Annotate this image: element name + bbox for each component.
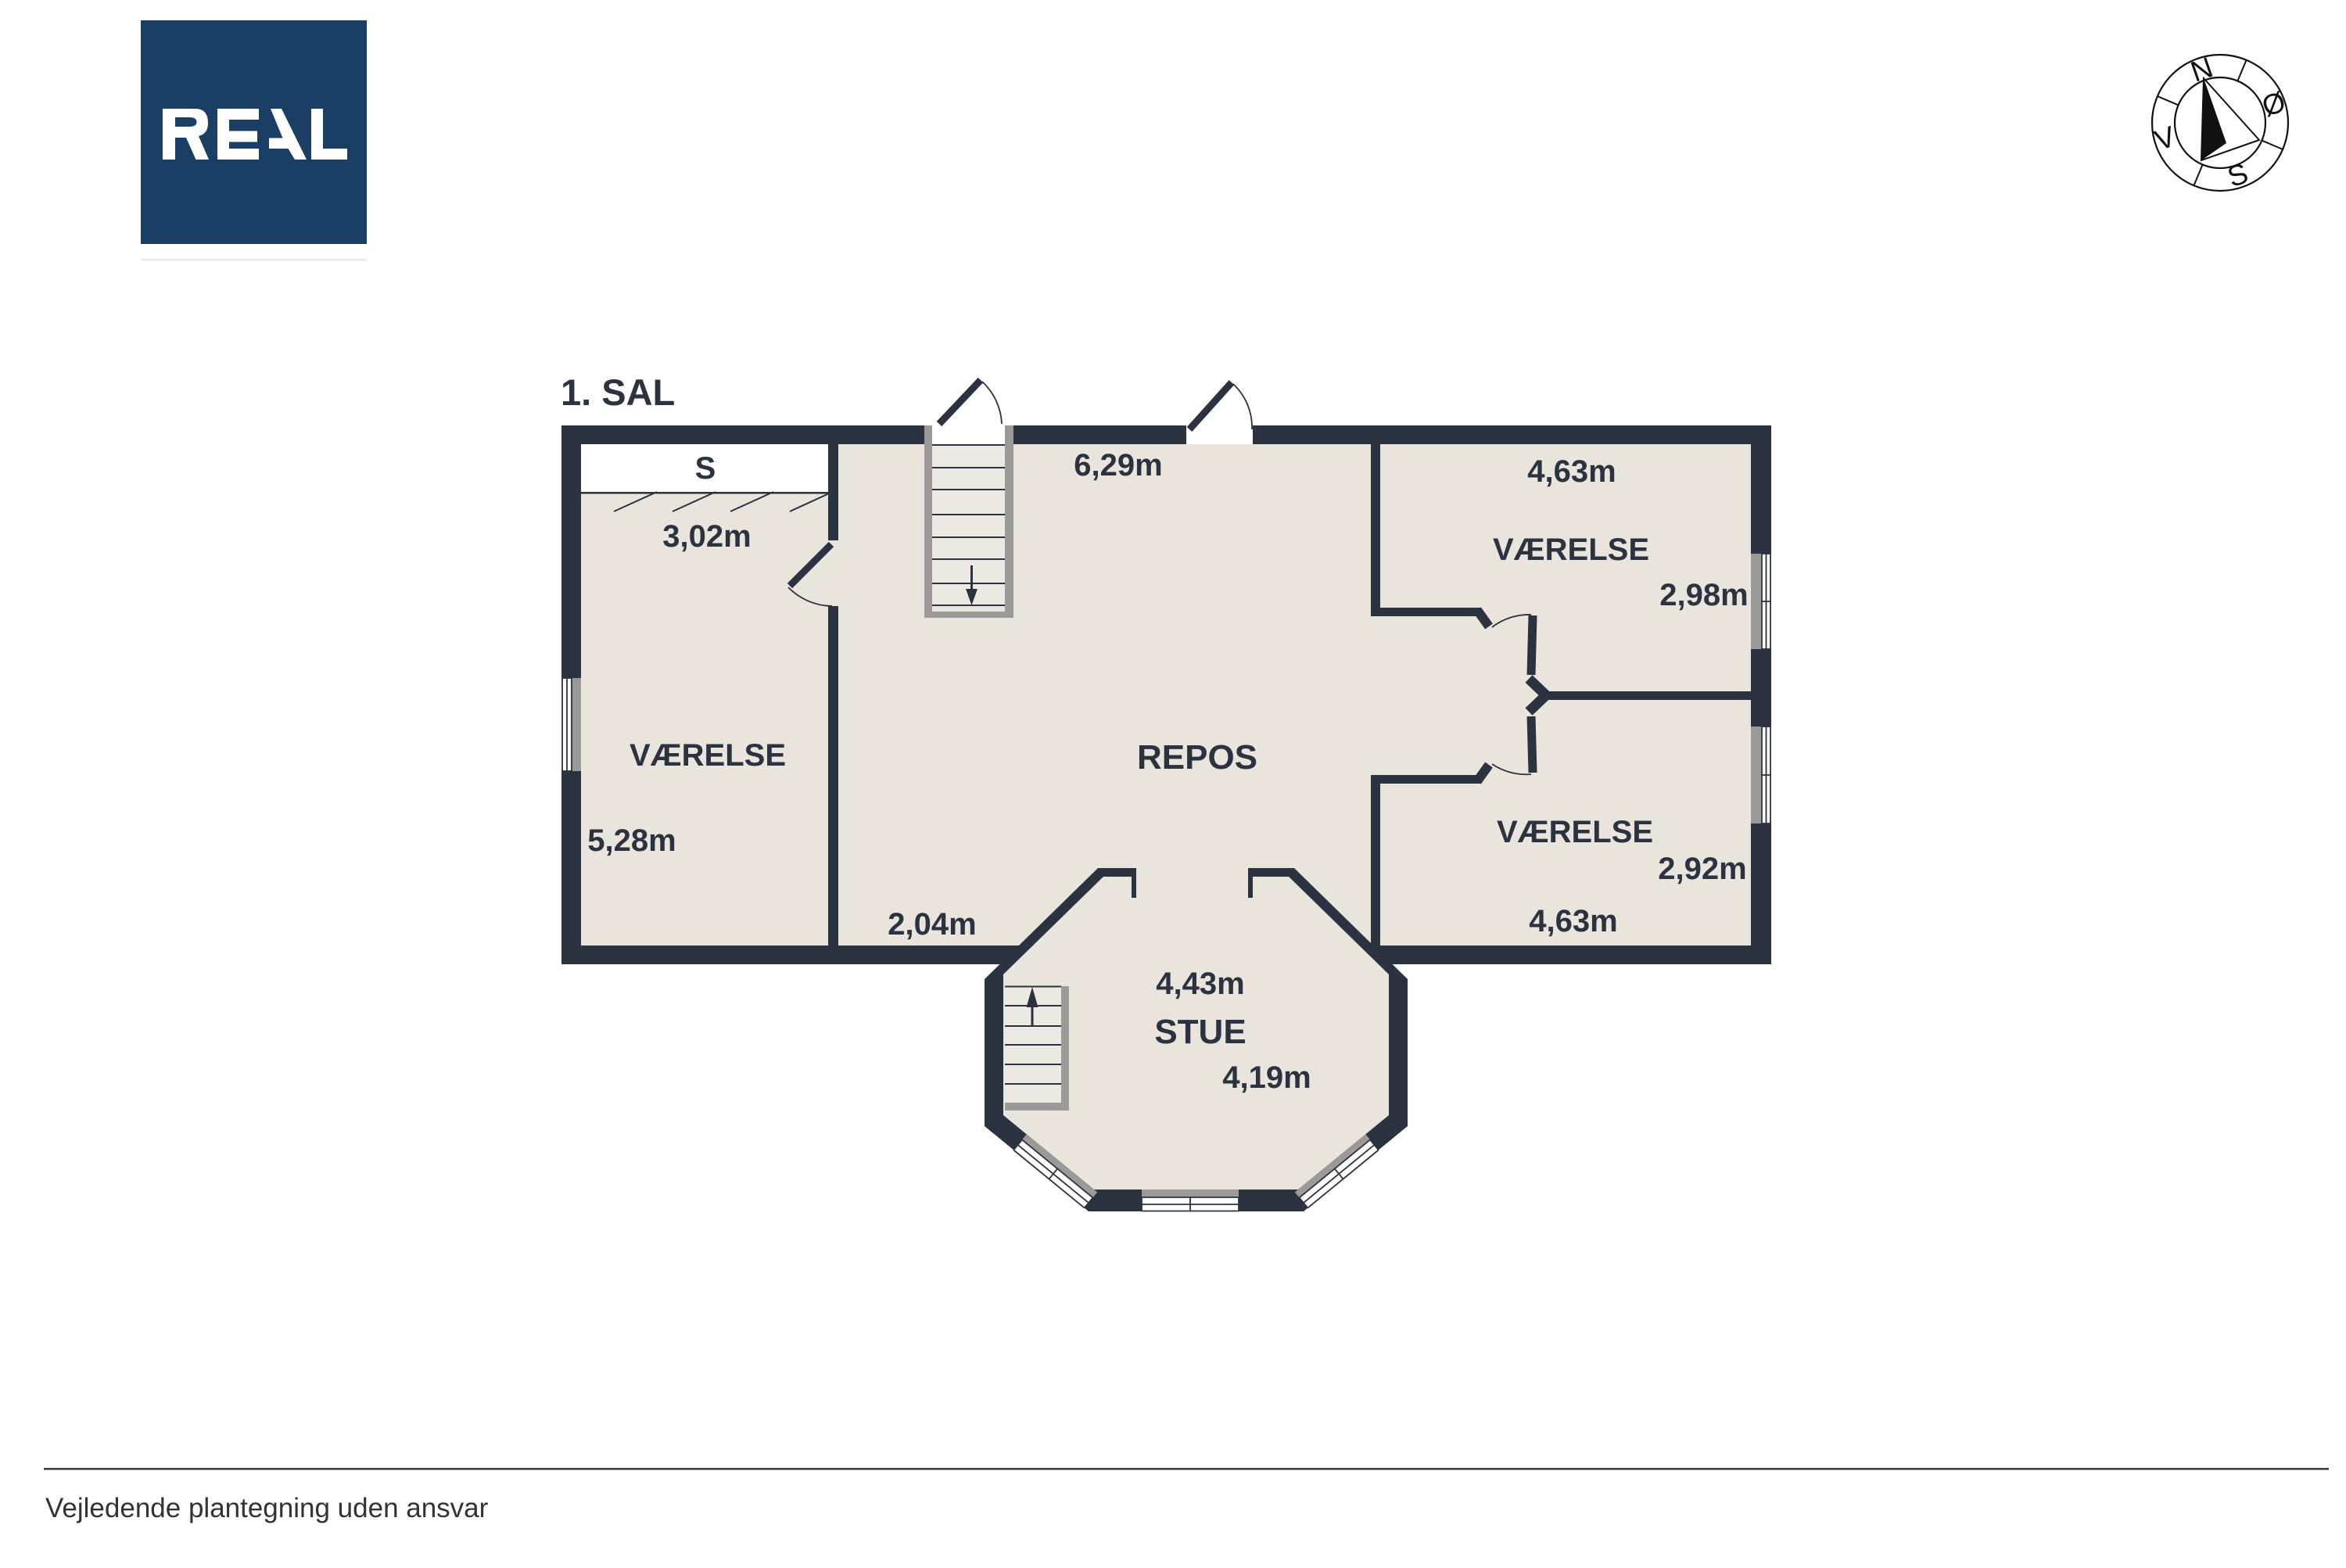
svg-text:4,19m: 4,19m xyxy=(1222,1060,1311,1095)
svg-text:2,92m: 2,92m xyxy=(1658,852,1746,886)
svg-text:4,43m: 4,43m xyxy=(1156,967,1244,1001)
svg-text:2,04m: 2,04m xyxy=(888,907,976,942)
svg-text:S: S xyxy=(695,451,716,486)
svg-text:VÆRELSE: VÆRELSE xyxy=(1497,815,1653,849)
svg-text:3,02m: 3,02m xyxy=(662,519,751,554)
svg-text:Vejledende plantegning uden an: Vejledende plantegning uden ansvar xyxy=(45,1493,489,1523)
svg-text:1. SAL: 1. SAL xyxy=(561,371,675,413)
svg-text:4,63m: 4,63m xyxy=(1529,904,1617,938)
svg-text:VÆRELSE: VÆRELSE xyxy=(630,738,786,773)
svg-text:STUE: STUE xyxy=(1154,1013,1246,1051)
svg-text:6,29m: 6,29m xyxy=(1074,448,1162,483)
svg-text:4,63m: 4,63m xyxy=(1527,454,1616,489)
svg-text:VÆRELSE: VÆRELSE xyxy=(1493,533,1649,567)
svg-text:REPOS: REPOS xyxy=(1137,738,1257,777)
svg-text:5,28m: 5,28m xyxy=(587,823,676,858)
svg-text:2,98m: 2,98m xyxy=(1659,578,1748,612)
